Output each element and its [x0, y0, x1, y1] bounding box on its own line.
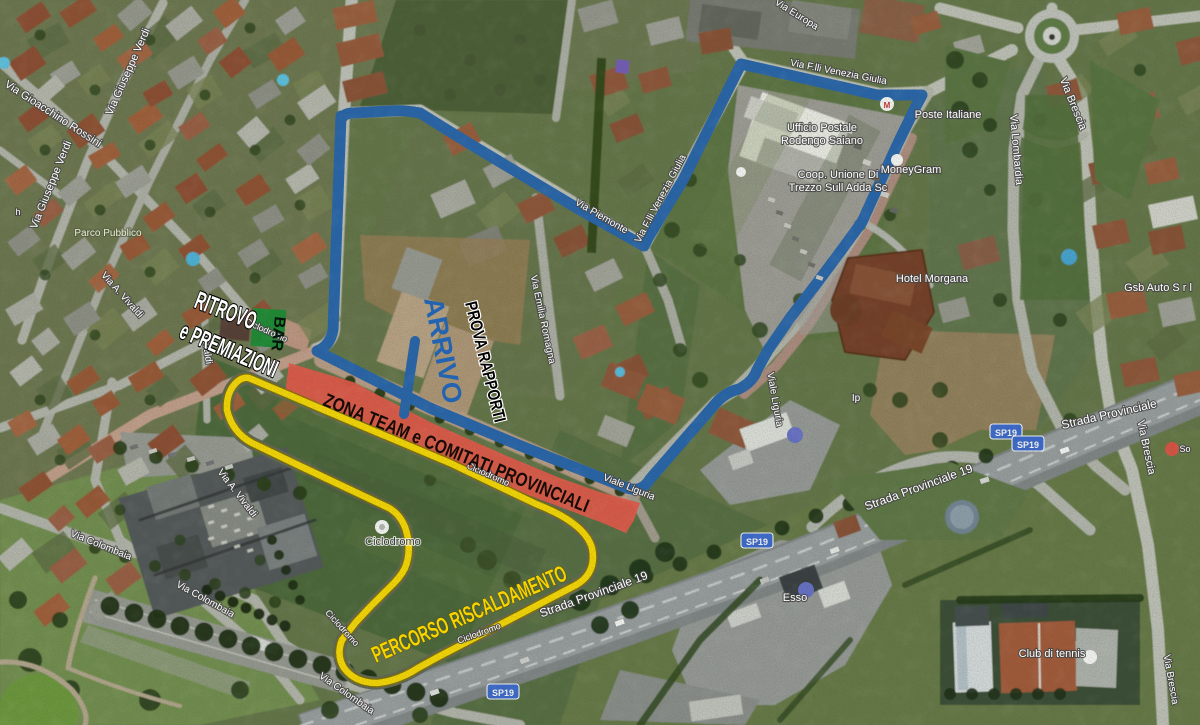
svg-text:Parco Pubblico: Parco Pubblico: [74, 228, 142, 239]
svg-text:Poste Italiane: Poste Italiane: [915, 109, 982, 121]
svg-text:Gsb Auto S r l: Gsb Auto S r l: [1124, 282, 1192, 294]
svg-text:h: h: [15, 207, 20, 217]
svg-text:Ip: Ip: [852, 393, 861, 404]
svg-text:Ufficio Postale: Ufficio Postale: [787, 122, 857, 134]
svg-text:Trezzo Sull Adda Sc: Trezzo Sull Adda Sc: [789, 182, 888, 194]
svg-text:MoneyGram: MoneyGram: [881, 164, 942, 176]
svg-text:Ciclodromo: Ciclodromo: [365, 536, 421, 548]
svg-text:Esso: Esso: [783, 592, 807, 604]
svg-text:Rodengo Saiano: Rodengo Saiano: [781, 135, 863, 147]
svg-text:Hotel Morgana: Hotel Morgana: [896, 273, 969, 285]
svg-text:So: So: [1179, 444, 1190, 454]
svg-text:Coop. Unione Di: Coop. Unione Di: [798, 169, 879, 181]
svg-text:Club di tennis: Club di tennis: [1019, 648, 1086, 660]
